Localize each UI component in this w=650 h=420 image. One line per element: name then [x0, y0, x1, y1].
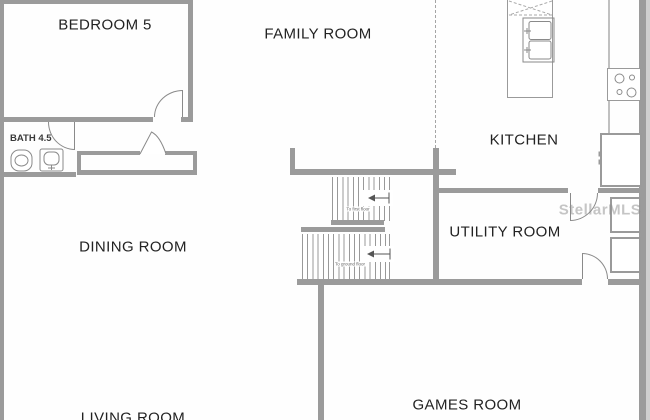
sink-icon	[40, 149, 63, 171]
room-label-dining: DINING ROOM	[79, 239, 187, 256]
island-sink-icon	[523, 18, 554, 62]
room-label-family: FAMILY ROOM	[264, 26, 371, 43]
room-label-living: LIVING ROOM	[81, 410, 185, 420]
room-label-bath: BATH 4.5	[10, 133, 52, 144]
room-label-kitchen: KITCHEN	[490, 132, 559, 149]
stair-caption-down: To ground floor	[334, 262, 366, 267]
cooktop-burners	[615, 74, 636, 97]
fixtures-overlay	[0, 0, 650, 420]
island-dashed-x	[509, 1, 552, 15]
room-label-bedroom5: BEDROOM 5	[58, 17, 152, 34]
stair-arrow-up	[362, 190, 393, 206]
door-arc-closet	[140, 132, 166, 154]
refrigerator-handles	[599, 152, 602, 165]
room-label-utility: UTILITY ROOM	[449, 224, 560, 241]
room-label-games: GAMES ROOM	[412, 397, 521, 414]
stair-caption-up: To first floor	[345, 207, 370, 212]
floor-plan: BEDROOM 5 FAMILY ROOM KITCHEN BATH 4.5 D…	[0, 0, 650, 420]
stair-arrow-down	[361, 246, 394, 262]
toilet-icon	[11, 150, 32, 171]
watermark: StellarMLS	[559, 202, 642, 219]
